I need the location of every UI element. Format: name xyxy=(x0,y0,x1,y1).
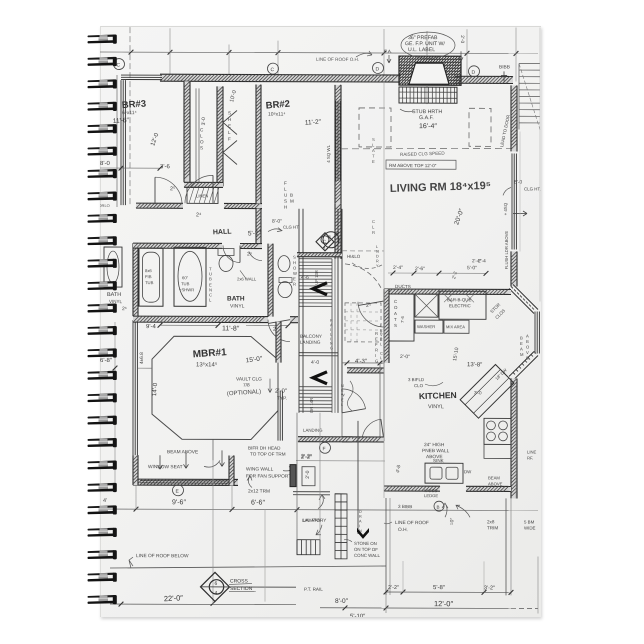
svg-text:L: L xyxy=(380,342,382,346)
svg-text:UP 13R: UP 13R xyxy=(314,270,319,285)
svg-text:VINYL: VINYL xyxy=(109,299,123,304)
svg-text:BIBB: BIBB xyxy=(499,64,510,70)
svg-text:L: L xyxy=(200,133,203,138)
svg-text:KITCHEN: KITCHEN xyxy=(419,390,457,401)
svg-text:T: T xyxy=(372,153,375,158)
svg-text:3 BIBB: 3 BIBB xyxy=(398,504,412,509)
svg-text:BDRLO: BDRLO xyxy=(96,203,110,208)
svg-text:N: N xyxy=(341,384,344,388)
svg-text:E: E xyxy=(375,336,378,341)
svg-text:2⁸: 2⁸ xyxy=(247,252,252,258)
svg-text:RF.: RF. xyxy=(527,455,533,460)
svg-text:2'-4″: 2'-4″ xyxy=(472,258,482,263)
svg-text:C: C xyxy=(372,219,375,224)
svg-text:E: E xyxy=(526,355,529,360)
svg-text:4±6.8: 4±6.8 xyxy=(139,352,145,364)
svg-text:5 BM: 5 BM xyxy=(524,519,535,524)
svg-text:4 SQ WL: 4 SQ WL xyxy=(326,144,331,162)
svg-text:=0″: =0″ xyxy=(449,517,456,525)
svg-text:ON TOP OF: ON TOP OF xyxy=(354,547,378,552)
svg-text:F: F xyxy=(228,136,231,141)
svg-text:R: R xyxy=(375,347,378,352)
svg-text:MIX AREA: MIX AREA xyxy=(446,324,465,329)
svg-text:PNEB WALL: PNEB WALL xyxy=(422,448,450,454)
svg-text:7'-6: 7'-6 xyxy=(400,316,405,324)
svg-text:12'-0: 12'-0 xyxy=(150,132,160,147)
svg-text:TRIM: TRIM xyxy=(487,525,498,530)
svg-text:3'-0: 3'-0 xyxy=(474,390,482,395)
svg-text:E: E xyxy=(380,338,383,342)
svg-text:2'-4″: 2'-4″ xyxy=(393,265,403,271)
svg-text:+SHWR: +SHWR xyxy=(179,287,194,292)
svg-text:R: R xyxy=(375,331,378,336)
svg-text:TO TOP OF TRM: TO TOP OF TRM xyxy=(250,452,286,457)
svg-text:S: S xyxy=(394,323,397,328)
svg-text:8'-0: 8'-0 xyxy=(514,179,522,185)
svg-text:7/8: 7/8 xyxy=(243,382,250,388)
svg-text:2x6 WALL: 2x6 WALL xyxy=(237,276,257,281)
svg-text:6: 6 xyxy=(215,581,218,587)
svg-text:FLUSH LDR ABOVE: FLUSH LDR ABOVE xyxy=(504,231,509,270)
svg-text:6⁵x11⁴: 6⁵x11⁴ xyxy=(122,110,137,116)
svg-text:C: C xyxy=(200,127,204,132)
svg-text:N: N xyxy=(376,250,379,254)
svg-text:B: B xyxy=(526,339,529,344)
svg-text:L: L xyxy=(209,297,212,302)
svg-text:14'-0: 14'-0 xyxy=(152,382,159,396)
svg-text:E: E xyxy=(176,489,180,495)
svg-text:FIB: FIB xyxy=(145,274,152,279)
svg-text:2'-0: 2'-0 xyxy=(459,35,465,43)
svg-text:11'-6″: 11'-6″ xyxy=(113,117,130,125)
svg-text:2⁴: 2⁴ xyxy=(366,303,371,309)
svg-text:P.T. RAIL: P.T. RAIL xyxy=(304,587,323,592)
svg-text:BEAM ABOVE: BEAM ABOVE xyxy=(167,449,198,455)
svg-text:A: A xyxy=(526,333,529,338)
svg-text:LAV. PAN: LAV. PAN xyxy=(302,518,321,523)
svg-text:10⁸x11⁴: 10⁸x11⁴ xyxy=(268,112,286,118)
svg-text:M: M xyxy=(290,199,294,204)
svg-text:2'-0″: 2'-0″ xyxy=(275,389,288,395)
svg-text:11'-2″: 11'-2″ xyxy=(305,119,322,127)
svg-text:BATH: BATH xyxy=(227,295,245,302)
svg-text:L: L xyxy=(228,130,231,135)
svg-text:BR#2: BR#2 xyxy=(265,99,290,112)
svg-text:DUCTS: DUCTS xyxy=(395,284,411,289)
svg-text:BIFR DH HEAD: BIFR DH HEAD xyxy=(248,446,281,451)
svg-text:CLG HT.: CLG HT. xyxy=(524,186,541,191)
svg-text:E: E xyxy=(293,276,296,281)
svg-text:LEAD TO DOOR: LEAD TO DOOR xyxy=(499,114,511,147)
svg-text:A: A xyxy=(359,520,362,524)
svg-text:C: C xyxy=(271,67,275,73)
svg-text:S: S xyxy=(284,199,287,204)
svg-text:8x6: 8x6 xyxy=(145,268,152,273)
svg-text:4'-6: 4'-6 xyxy=(301,275,309,281)
svg-text:O: O xyxy=(394,305,398,310)
svg-text:9'-6″: 9'-6″ xyxy=(172,499,186,506)
svg-text:S: S xyxy=(228,110,231,115)
svg-text:R: R xyxy=(293,282,296,287)
svg-text:2'-0: 2'-0 xyxy=(305,470,311,478)
svg-text:I: I xyxy=(359,524,360,528)
svg-text:15'-10: 15'-10 xyxy=(452,347,460,362)
svg-text:ELECTRIC: ELECTRIC xyxy=(449,303,471,308)
svg-text:2'-0″: 2'-0″ xyxy=(400,354,410,360)
svg-text:CLG HT: CLG HT xyxy=(283,225,299,230)
svg-text:TUB: TUB xyxy=(181,281,190,286)
svg-text:F: F xyxy=(375,342,378,347)
svg-text:R: R xyxy=(330,319,333,323)
svg-text:5'-0″: 5'-0″ xyxy=(467,265,477,271)
svg-text:LINE OF ROOF O.H.: LINE OF ROOF O.H. xyxy=(316,57,359,62)
svg-text:C: C xyxy=(380,352,383,356)
svg-text:6'-8″: 6'-8″ xyxy=(100,358,113,364)
svg-text:BAR-B-QUE: BAR-B-QUE xyxy=(447,297,471,302)
svg-text:HALL: HALL xyxy=(213,228,233,236)
svg-text:I: I xyxy=(330,337,331,341)
svg-text:2'-2: 2'-2 xyxy=(451,271,458,280)
svg-text:3'-6: 3'-6 xyxy=(160,164,170,170)
svg-text:5'-2″: 5'-2″ xyxy=(248,230,262,238)
svg-text:13'-8″: 13'-8″ xyxy=(467,362,483,368)
svg-text:WASHER: WASHER xyxy=(417,324,435,329)
svg-text:13⁵x14⁵: 13⁵x14⁵ xyxy=(196,361,218,368)
svg-text:2⁶: 2⁶ xyxy=(122,306,127,312)
svg-text:TUB: TUB xyxy=(145,280,154,285)
svg-text:2⁴: 2⁴ xyxy=(196,211,202,218)
svg-text:E: E xyxy=(372,159,375,164)
svg-text:2x12 TRM: 2x12 TRM xyxy=(248,489,270,495)
svg-text:W: W xyxy=(293,271,297,276)
svg-text:R: R xyxy=(372,230,375,235)
svg-text:N: N xyxy=(330,342,333,346)
svg-text:2⁵: 2⁵ xyxy=(170,185,175,192)
svg-text:L: L xyxy=(376,245,378,249)
svg-text:B: B xyxy=(520,335,523,340)
svg-text:VAULT CLG: VAULT CLG xyxy=(236,376,262,382)
svg-text:RM ABOVE TOP 12'-0″: RM ABOVE TOP 12'-0″ xyxy=(389,163,437,168)
svg-text:10'-0: 10'-0 xyxy=(229,90,238,103)
svg-text:MBR#1: MBR#1 xyxy=(192,347,227,360)
svg-text:V: V xyxy=(526,350,529,355)
svg-text:SECTION: SECTION xyxy=(230,586,253,592)
svg-text:24" HIGH: 24" HIGH xyxy=(424,442,445,448)
svg-text:C: C xyxy=(323,239,326,244)
svg-text:S: S xyxy=(372,137,375,142)
svg-text:F: F xyxy=(284,181,287,186)
svg-text:4'-8: 4'-8 xyxy=(395,464,402,473)
svg-text:BALCONY: BALCONY xyxy=(300,334,322,339)
svg-text:L: L xyxy=(330,333,332,337)
svg-text:LINE OF ROOF BELOW: LINE OF ROOF BELOW xyxy=(136,553,189,559)
svg-text:WINDOW SEAT: WINDOW SEAT xyxy=(148,464,183,470)
svg-text:VINYL: VINYL xyxy=(428,404,444,410)
svg-text:9'-4: 9'-4 xyxy=(146,324,156,330)
svg-text:60": 60" xyxy=(182,275,189,280)
svg-text:VINYL: VINYL xyxy=(230,303,245,309)
svg-text:E: E xyxy=(341,398,344,402)
svg-text:S: S xyxy=(200,145,203,150)
svg-text:LINE OF ROOF: LINE OF ROOF xyxy=(395,520,429,526)
svg-text:LANDING: LANDING xyxy=(300,340,321,345)
svg-text:15'-0″: 15'-0″ xyxy=(245,355,263,364)
svg-text:S: S xyxy=(293,255,296,260)
svg-text:HI&LO: HI&LO xyxy=(347,254,361,259)
svg-text:O: O xyxy=(526,344,530,349)
svg-text:C: C xyxy=(394,299,397,304)
svg-text:E: E xyxy=(520,341,523,346)
svg-text:BEAM: BEAM xyxy=(488,475,500,480)
svg-text:O.H.: O.H. xyxy=(398,527,408,533)
svg-text:U.L. LABEL: U.L. LABEL xyxy=(408,47,435,53)
svg-text:B: B xyxy=(290,193,293,198)
svg-text:L: L xyxy=(372,224,375,229)
svg-text:D: D xyxy=(359,510,362,514)
svg-text:12'-0″: 12'-0″ xyxy=(434,599,453,608)
svg-text:DW: DW xyxy=(464,469,472,474)
svg-text:8'-0″: 8'-0″ xyxy=(335,598,349,605)
svg-text:LINEN: LINEN xyxy=(196,193,208,198)
svg-text:16'-4″: 16'-4″ xyxy=(419,123,437,130)
svg-text:LINE: LINE xyxy=(527,449,537,454)
svg-text:R: R xyxy=(376,259,379,263)
svg-text:B: B xyxy=(437,505,440,510)
svg-text:H: H xyxy=(284,205,287,210)
svg-text:G.A.F.: G.A.F. xyxy=(419,115,434,121)
svg-text:RAISED CLG SPEED: RAISED CLG SPEED xyxy=(400,151,446,157)
svg-text:LEDGE: LEDGE xyxy=(424,493,438,498)
svg-text:ABOVE: ABOVE xyxy=(426,454,443,460)
svg-text:D: D xyxy=(376,66,380,72)
svg-text:M: M xyxy=(520,352,524,357)
svg-text:+ 4SQ: + 4SQ xyxy=(503,202,508,215)
svg-text:A: A xyxy=(394,311,397,316)
svg-text:4': 4' xyxy=(103,498,107,504)
svg-text:B: B xyxy=(209,276,212,281)
svg-text:I: I xyxy=(375,353,376,358)
svg-text:L: L xyxy=(380,356,382,360)
svg-text:O: O xyxy=(200,139,204,144)
svg-text:CONC WALL: CONC WALL xyxy=(354,553,380,558)
svg-text:H: H xyxy=(293,260,296,265)
svg-text:FOR FAN SUPPORT: FOR FAN SUPPORT xyxy=(246,474,291,480)
svg-text:G: G xyxy=(330,346,333,350)
svg-text:D: D xyxy=(472,70,476,76)
svg-text:L: L xyxy=(284,187,287,192)
svg-text:WING WALL: WING WALL xyxy=(246,467,274,473)
svg-text:4'-0: 4'-0 xyxy=(311,360,319,366)
svg-text:3'-2″: 3'-2″ xyxy=(484,585,495,591)
svg-text:D: D xyxy=(376,255,379,259)
svg-text:2'-2″: 2'-2″ xyxy=(388,585,399,591)
svg-text:LIVING RM 18⁴x19⁵: LIVING RM 18⁴x19⁵ xyxy=(390,180,491,195)
svg-text:F: F xyxy=(323,446,326,452)
svg-text:A: A xyxy=(330,323,333,327)
svg-text:STONE ON: STONE ON xyxy=(354,541,377,546)
svg-text:3 BIFLD: 3 BIFLD xyxy=(408,377,424,382)
svg-text:6'-6″: 6'-6″ xyxy=(251,500,265,507)
svg-text:8'-0″: 8'-0″ xyxy=(272,219,282,225)
svg-text:DN 14R: DN 14R xyxy=(309,398,314,413)
svg-text:4: 4 xyxy=(215,590,218,596)
svg-text:O: O xyxy=(293,265,297,270)
svg-text:11'-8″: 11'-8″ xyxy=(222,325,240,332)
svg-text:ABOVE: ABOVE xyxy=(488,481,503,486)
svg-text:8'-0: 8'-0 xyxy=(100,161,110,167)
svg-text:(OPTIONAL): (OPTIONAL) xyxy=(227,389,262,397)
svg-text:L: L xyxy=(380,324,382,328)
svg-text:20'-0″: 20'-0″ xyxy=(453,207,465,226)
svg-text:T: T xyxy=(394,317,397,322)
svg-text:U: U xyxy=(284,193,287,198)
svg-text:C: C xyxy=(117,63,121,69)
svg-text:L: L xyxy=(372,142,375,147)
svg-text:4'-3″: 4'-3″ xyxy=(355,359,368,365)
svg-text:A: A xyxy=(372,148,375,153)
svg-text:BATH: BATH xyxy=(107,292,121,298)
svg-text:V: V xyxy=(380,333,383,337)
svg-text:2'-2″: 2'-2″ xyxy=(301,454,312,460)
svg-text:F.A.: F.A. xyxy=(384,49,392,55)
svg-text:5'-8″: 5'-8″ xyxy=(433,585,446,591)
svg-text:2x8: 2x8 xyxy=(487,519,495,524)
svg-text:R: R xyxy=(359,515,362,519)
svg-text:I: I xyxy=(330,328,331,332)
svg-text:L: L xyxy=(341,403,343,407)
svg-text:CLO: CLO xyxy=(414,383,424,388)
svg-text:WIDE: WIDE xyxy=(524,525,536,530)
svg-text:W: W xyxy=(341,393,345,397)
svg-text:3'-0: 3'-0 xyxy=(201,117,207,125)
svg-text:E: E xyxy=(380,329,383,333)
svg-text:22'-0″: 22'-0″ xyxy=(164,593,184,603)
svg-text:A: A xyxy=(520,346,523,351)
svg-text:5'-10″: 5'-10″ xyxy=(350,614,366,620)
